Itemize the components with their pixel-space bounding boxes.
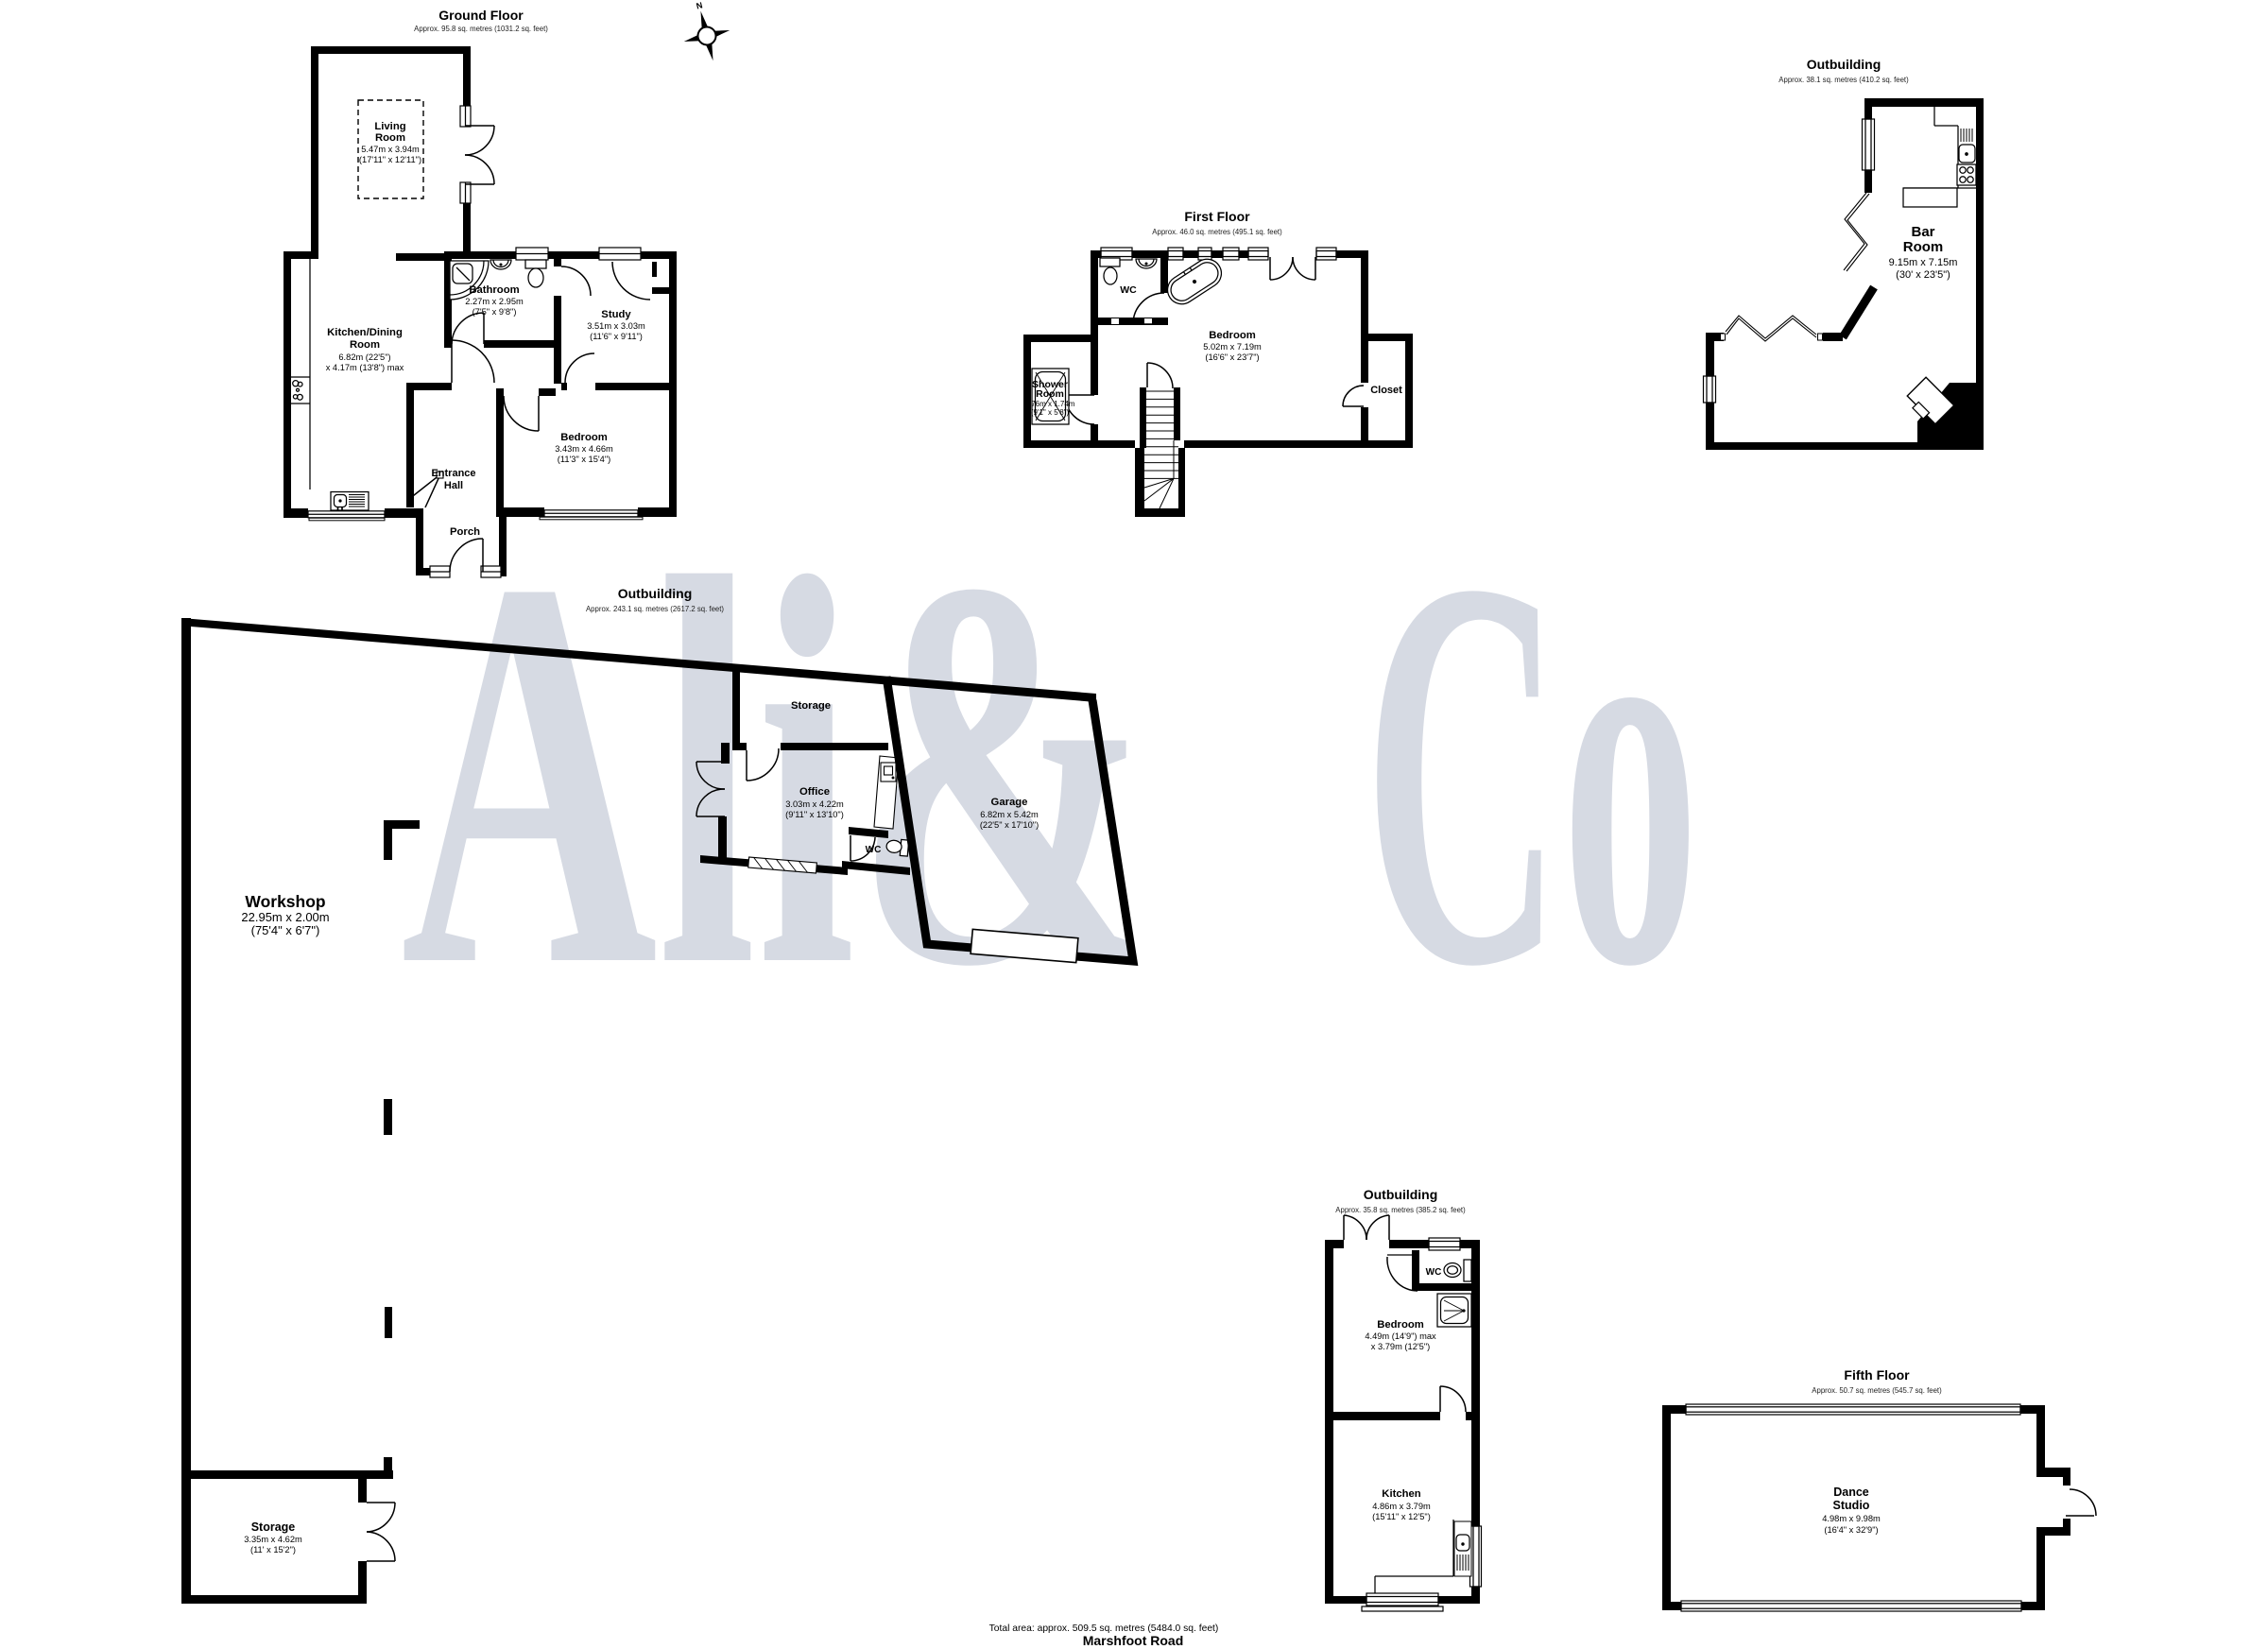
svg-text:3.03m x 4.22m: 3.03m x 4.22m <box>785 799 844 809</box>
svg-text:WC: WC <box>866 845 882 855</box>
svg-text:2.76m x 1.74m: 2.76m x 1.74m <box>1025 400 1075 408</box>
svg-text:(11'6" x 9'11"): (11'6" x 9'11") <box>590 332 643 341</box>
svg-text:5.02m x 7.19m: 5.02m x 7.19m <box>1203 342 1262 352</box>
svg-text:Ground Floor: Ground Floor <box>438 8 524 23</box>
svg-text:Bathroom: Bathroom <box>469 284 519 296</box>
svg-text:(30' x 23'5"): (30' x 23'5") <box>1896 269 1950 281</box>
svg-text:(11' x 15'2"): (11' x 15'2") <box>250 1545 296 1555</box>
svg-text:(7'5" x 9'8"): (7'5" x 9'8") <box>472 307 517 317</box>
svg-text:Living: Living <box>374 121 405 132</box>
svg-text:Workshop: Workshop <box>245 892 325 911</box>
svg-text:Kitchen/Dining: Kitchen/Dining <box>327 327 403 338</box>
svg-text:Hall: Hall <box>444 480 463 491</box>
svg-text:Studio: Studio <box>1833 1499 1870 1512</box>
svg-text:Kitchen: Kitchen <box>1382 1488 1421 1500</box>
svg-text:4.86m x 3.79m: 4.86m x 3.79m <box>1372 1502 1431 1511</box>
svg-text:Garage: Garage <box>991 797 1028 808</box>
svg-text:Storage: Storage <box>251 1520 296 1534</box>
svg-text:2.27m x 2.95m: 2.27m x 2.95m <box>465 297 524 306</box>
svg-text:(75'4" x 6'7"): (75'4" x 6'7") <box>251 923 320 937</box>
svg-text:Marshfoot Road: Marshfoot Road <box>1083 1633 1184 1648</box>
svg-text:(16'4" x 32'9"): (16'4" x 32'9") <box>1824 1525 1878 1535</box>
svg-text:Fifth Floor: Fifth Floor <box>1844 1367 1910 1383</box>
svg-text:Approx. 243.1 sq. metres (2617: Approx. 243.1 sq. metres (2617.2 sq. fee… <box>586 605 724 613</box>
svg-text:Approx. 46.0 sq. metres (495.1: Approx. 46.0 sq. metres (495.1 sq. feet) <box>1152 228 1282 236</box>
svg-text:x 4.17m (13'8") max: x 4.17m (13'8") max <box>326 363 404 372</box>
svg-text:WC: WC <box>1426 1267 1442 1278</box>
svg-text:Bedroom: Bedroom <box>1209 330 1256 341</box>
svg-text:Outbuilding: Outbuilding <box>1807 57 1881 72</box>
svg-text:Room: Room <box>350 339 380 351</box>
svg-text:Room: Room <box>1036 388 1064 400</box>
svg-text:First Floor: First Floor <box>1184 209 1250 224</box>
svg-text:3.43m x 4.66m: 3.43m x 4.66m <box>555 444 613 454</box>
svg-text:Bar: Bar <box>1911 224 1934 240</box>
svg-text:3.51m x 3.03m: 3.51m x 3.03m <box>587 321 645 331</box>
svg-text:6.82m (22'5"): 6.82m (22'5") <box>338 352 390 362</box>
svg-text:(9'11" x 13'10"): (9'11" x 13'10") <box>785 810 844 819</box>
svg-text:Study: Study <box>601 309 631 320</box>
svg-text:Office: Office <box>799 786 830 798</box>
svg-text:x 3.79m (12'5"): x 3.79m (12'5") <box>1371 1342 1430 1351</box>
svg-text:4.98m x 9.98m: 4.98m x 9.98m <box>1822 1514 1881 1523</box>
svg-text:Dance: Dance <box>1833 1486 1869 1499</box>
svg-text:Bedroom: Bedroom <box>1377 1319 1424 1331</box>
svg-text:(17'11" x 12'11"): (17'11" x 12'11") <box>359 155 421 164</box>
svg-text:Porch: Porch <box>450 526 480 538</box>
svg-text:Closet: Closet <box>1370 385 1402 396</box>
svg-text:Outbuilding: Outbuilding <box>618 586 693 601</box>
svg-text:Room: Room <box>375 132 405 144</box>
svg-text:Approx. 38.1 sq. metres (410.2: Approx. 38.1 sq. metres (410.2 sq. feet) <box>1778 76 1909 84</box>
svg-text:5.47m x 3.94m: 5.47m x 3.94m <box>361 145 420 154</box>
svg-text:Approx. 50.7 sq. metres (545.7: Approx. 50.7 sq. metres (545.7 sq. feet) <box>1812 1386 1942 1395</box>
svg-text:Entrance: Entrance <box>431 468 475 479</box>
svg-text:22.95m x 2.00m: 22.95m x 2.00m <box>241 910 329 924</box>
svg-text:(9'1" x 5'8"): (9'1" x 5'8") <box>1031 408 1070 417</box>
svg-text:Room: Room <box>1903 239 1944 255</box>
svg-text:Approx. 95.8 sq. metres (1031.: Approx. 95.8 sq. metres (1031.2 sq. feet… <box>414 25 548 33</box>
svg-text:4.49m (14'9") max: 4.49m (14'9") max <box>1365 1331 1436 1341</box>
svg-text:6.82m x 5.42m: 6.82m x 5.42m <box>980 810 1039 819</box>
svg-text:WC: WC <box>1120 284 1137 296</box>
svg-text:Bedroom: Bedroom <box>560 432 608 443</box>
svg-text:Storage: Storage <box>791 700 831 712</box>
svg-text:(11'3" x 15'4"): (11'3" x 15'4") <box>558 455 611 464</box>
svg-text:Outbuilding: Outbuilding <box>1364 1187 1438 1202</box>
svg-text:Ali&: Ali& <box>401 463 1152 1081</box>
svg-text:(22'5" x 17'10"): (22'5" x 17'10") <box>980 820 1039 830</box>
svg-text:(16'6" x 23'7"): (16'6" x 23'7") <box>1205 352 1259 362</box>
svg-text:9.15m x 7.15m: 9.15m x 7.15m <box>1889 257 1958 268</box>
svg-text:3.35m x 4.62m: 3.35m x 4.62m <box>244 1535 302 1544</box>
svg-text:Approx. 35.8 sq. metres (385.2: Approx. 35.8 sq. metres (385.2 sq. feet) <box>1335 1206 1466 1214</box>
svg-text:Co: Co <box>1364 463 1699 1081</box>
svg-text:(15'11" x 12'5"): (15'11" x 12'5") <box>1372 1512 1431 1521</box>
